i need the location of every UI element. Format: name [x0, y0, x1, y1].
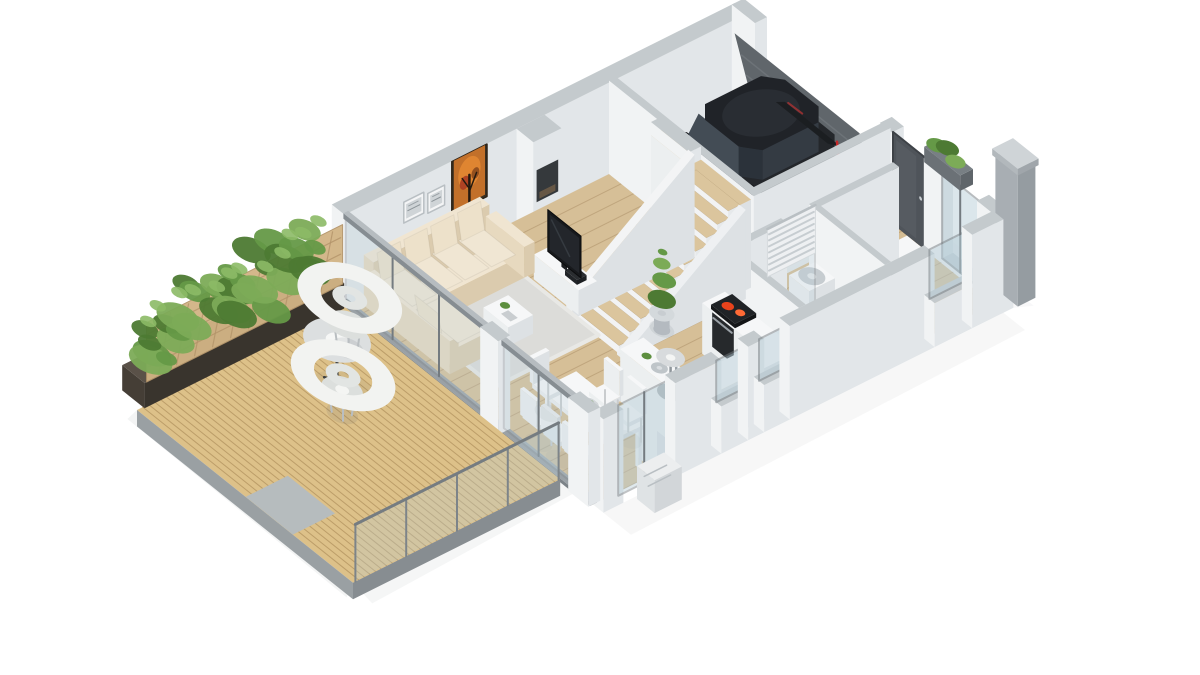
wall-se-5: [962, 211, 1004, 328]
floor-plan-render: [0, 0, 1200, 675]
floor-plan-canvas: [0, 0, 1200, 675]
sw-pier-2: [568, 391, 600, 507]
